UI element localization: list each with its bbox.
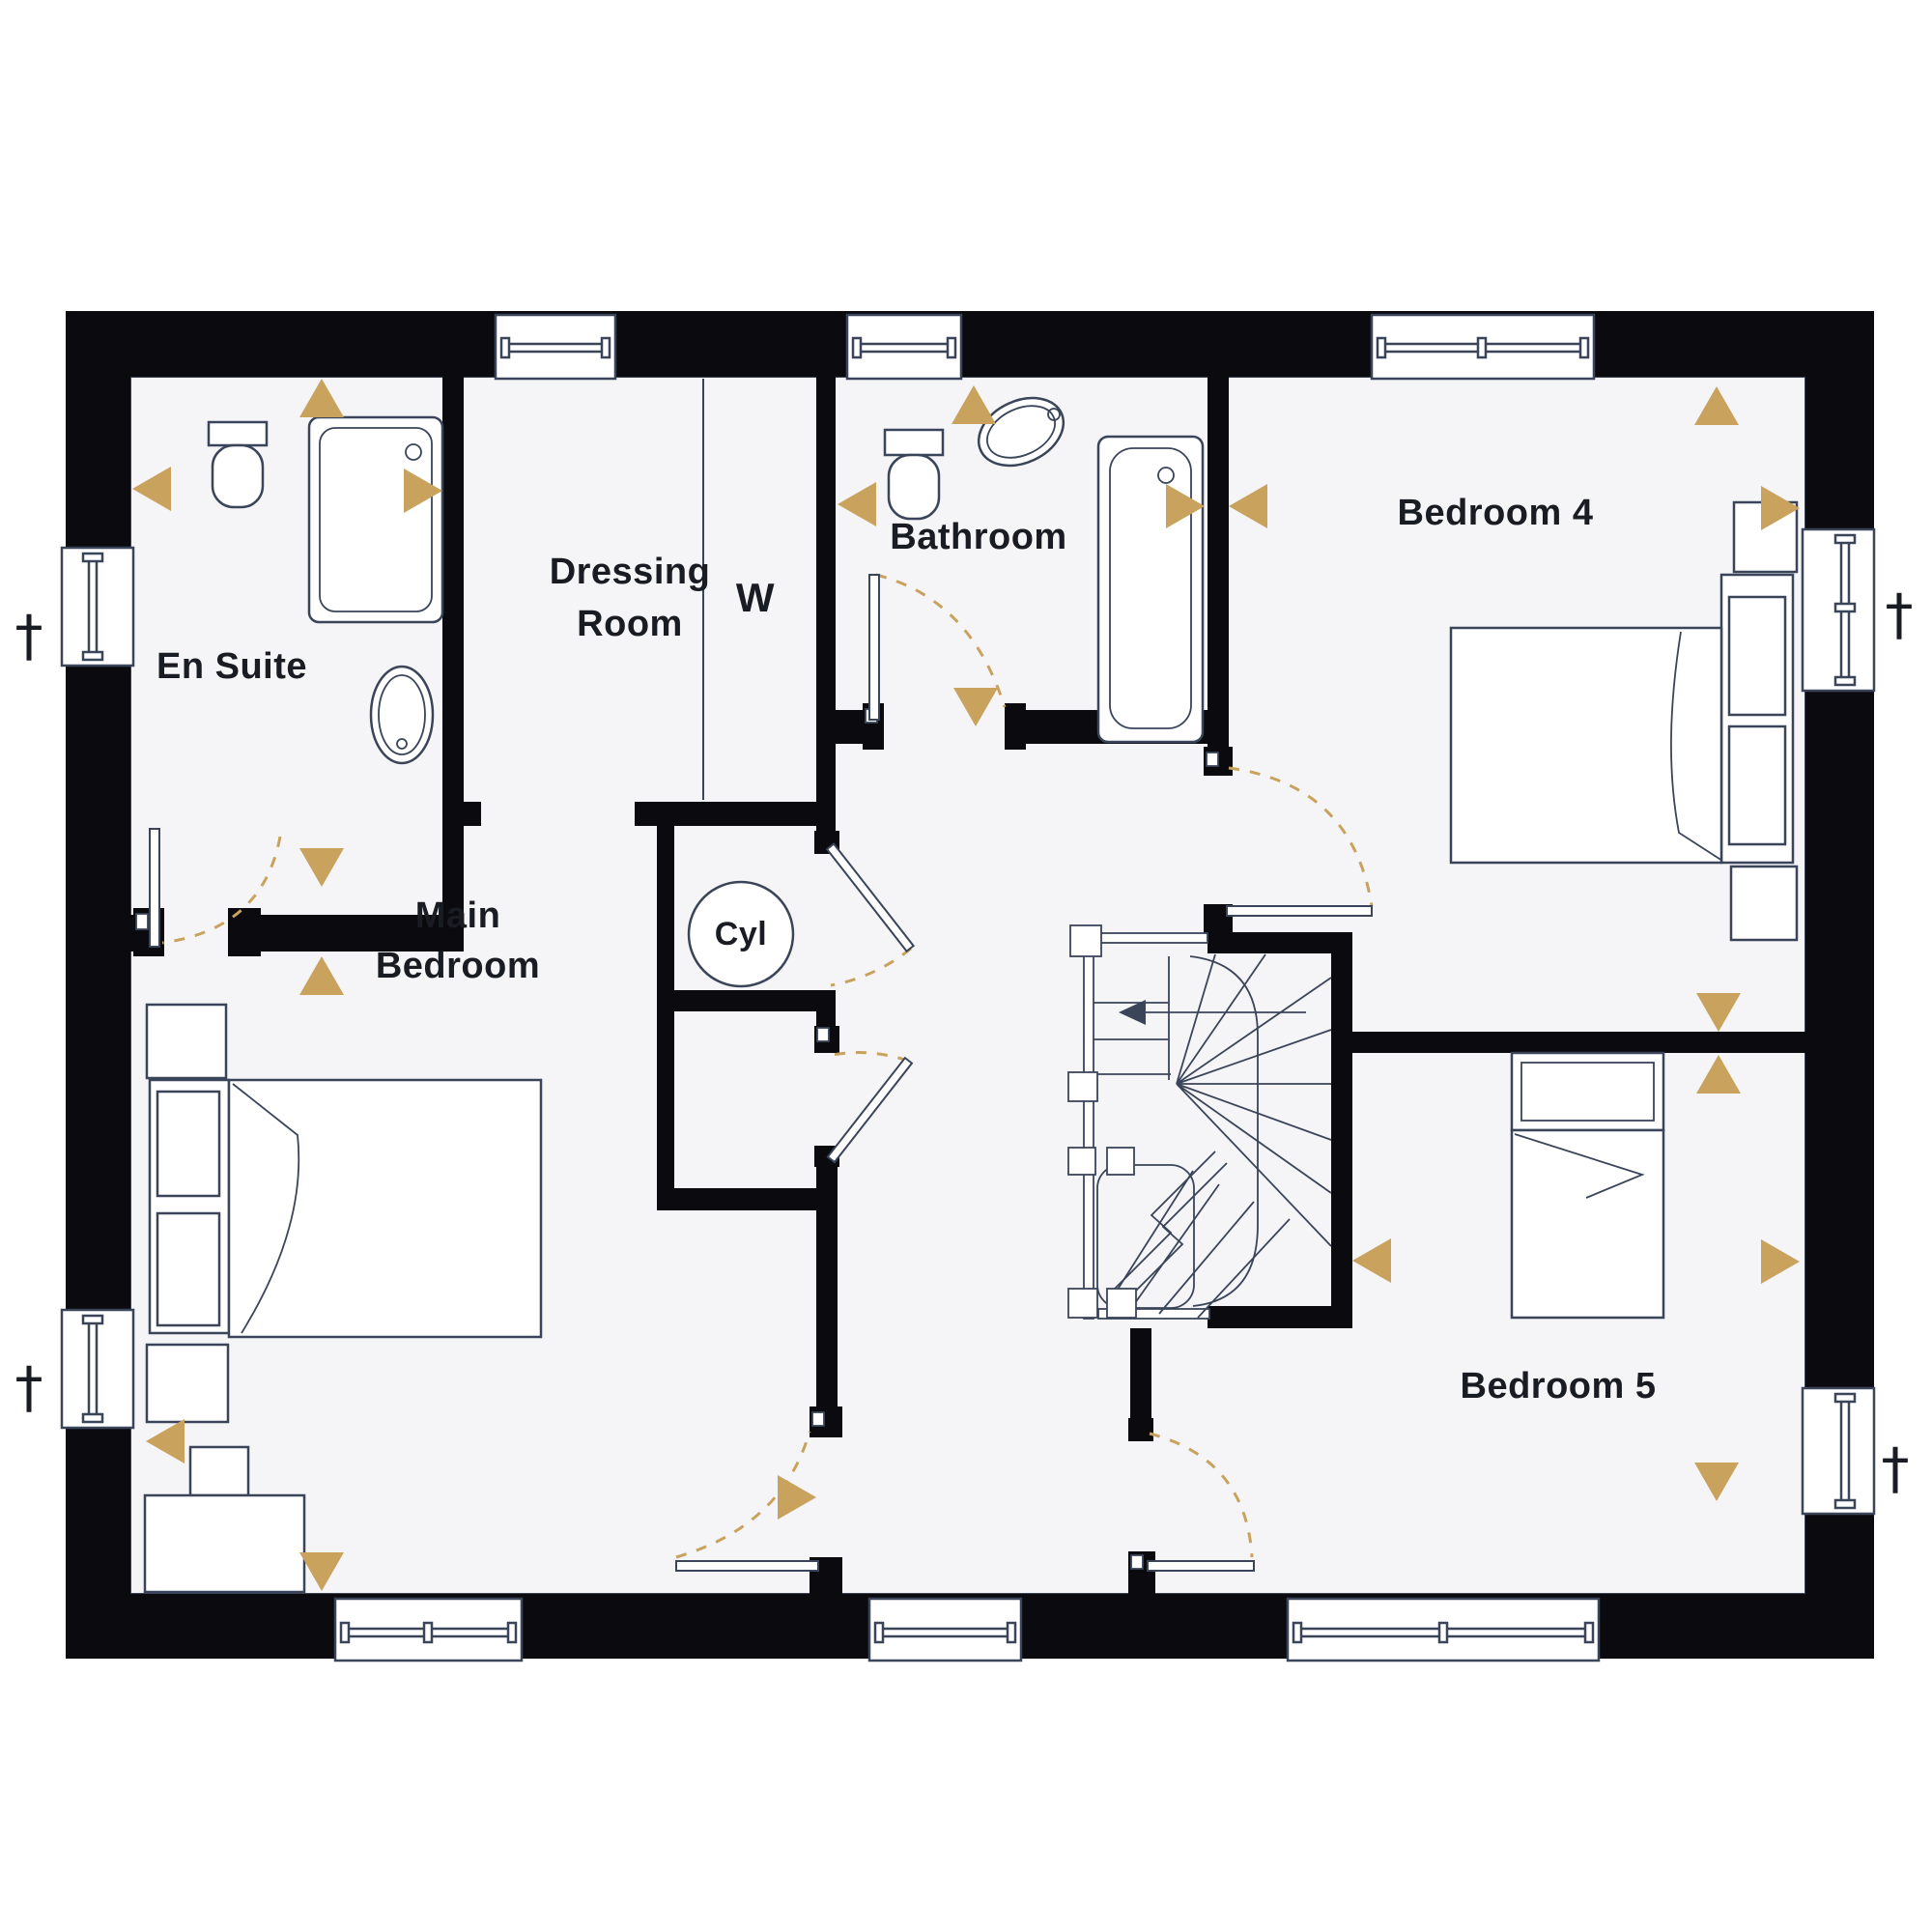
bathtub-icon bbox=[1098, 437, 1203, 742]
room-label-dressing-line1: Dressing bbox=[550, 552, 711, 592]
window-bottom-bedroom-5 bbox=[1288, 1599, 1599, 1661]
toilet-icon bbox=[885, 430, 943, 519]
floor-plan-page: Cyl bbox=[0, 0, 1932, 1932]
floor-plan-drawing: Cyl bbox=[0, 0, 1932, 1932]
room-label-bedroom-5: Bedroom 5 bbox=[1461, 1366, 1657, 1406]
room-label-bedroom-4: Bedroom 4 bbox=[1398, 493, 1594, 533]
window-left-main-bedroom bbox=[62, 1310, 133, 1428]
single-bed-icon bbox=[1512, 1053, 1663, 1318]
shower-icon bbox=[309, 417, 442, 622]
cylinder-label: Cyl bbox=[715, 916, 767, 952]
cylinder-icon: Cyl bbox=[689, 882, 793, 986]
room-label-main-bedroom-line1: Main bbox=[415, 895, 501, 936]
window-top-dressing bbox=[496, 315, 615, 379]
window-bottom-landing bbox=[869, 1599, 1021, 1661]
window-top-bathroom bbox=[847, 315, 961, 379]
room-label-bathroom: Bathroom bbox=[890, 517, 1066, 557]
window-bottom-main-bedroom bbox=[335, 1599, 522, 1661]
window-left-en-suite bbox=[62, 548, 133, 666]
window-right-bedroom-4 bbox=[1803, 529, 1874, 691]
dagger-marker: † bbox=[15, 603, 43, 668]
room-label-en-suite: En Suite bbox=[156, 646, 307, 687]
window-top-bedroom-4 bbox=[1372, 315, 1594, 379]
dagger-marker: † bbox=[15, 1354, 43, 1420]
dagger-marker: † bbox=[1886, 582, 1914, 647]
dagger-marker: † bbox=[1882, 1435, 1910, 1501]
window-right-bedroom-5 bbox=[1803, 1388, 1874, 1514]
room-label-main-bedroom-line2: Bedroom bbox=[376, 946, 540, 986]
room-label-dressing-line2: Room bbox=[577, 604, 683, 644]
toilet-icon bbox=[209, 422, 267, 507]
room-label-wardrobe: W bbox=[736, 575, 775, 620]
sink-icon bbox=[371, 667, 433, 763]
